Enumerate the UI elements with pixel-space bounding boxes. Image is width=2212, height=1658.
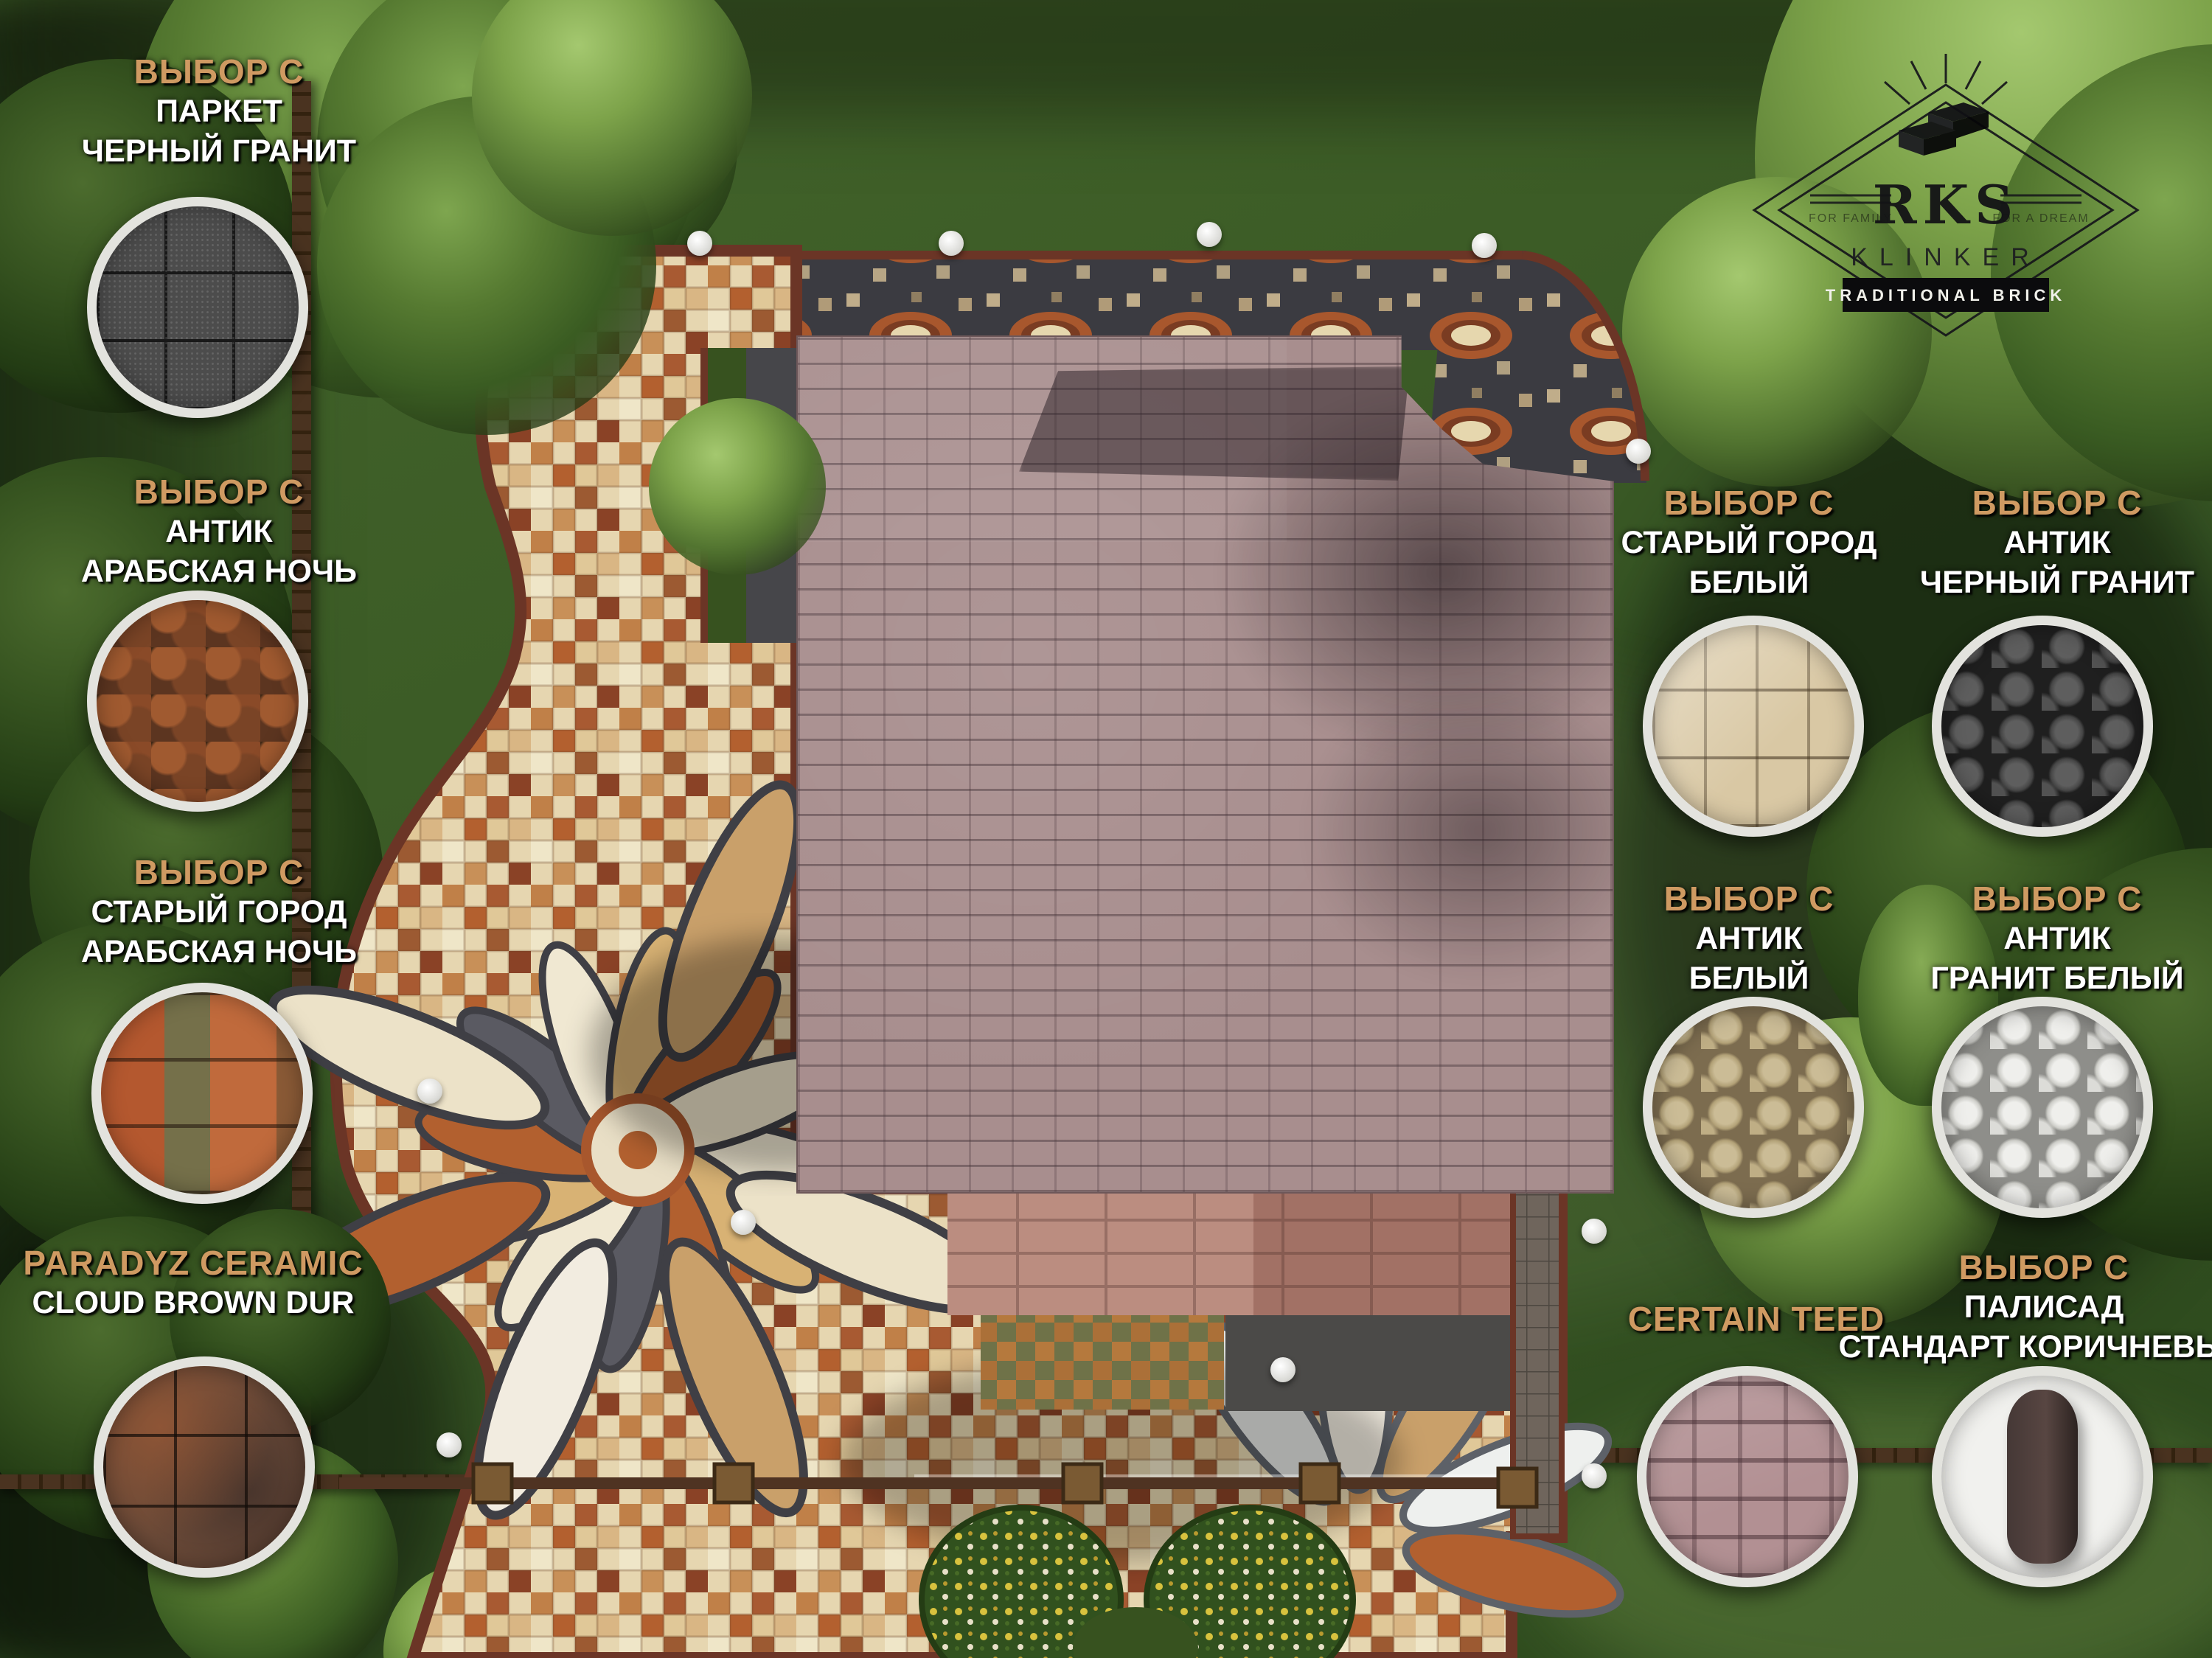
material-variant: СТАНДАРТ КОРИЧНЕВЫЙ xyxy=(1815,1327,2212,1367)
garden-lamp xyxy=(417,1079,442,1104)
swatch-old-town-white xyxy=(1643,616,1864,837)
logo-banner-text: TRADITIONAL BRICK xyxy=(1826,286,2066,304)
garden-lamp xyxy=(1472,233,1497,258)
material-name: АНТИК xyxy=(1829,919,2212,958)
material-brand: ВЫБОР С xyxy=(0,52,448,91)
material-brand: ВЫБОР С xyxy=(1829,879,2212,919)
material-brand: ВЫБОР С xyxy=(0,472,448,512)
material-label-antik-granite-white: ВЫБОР С АНТИК ГРАНИТ БЕЛЫЙ xyxy=(1829,879,2212,998)
material-variant: ГРАНИТ БЕЛЫЙ xyxy=(1829,958,2212,998)
logo-subname: KLINKER xyxy=(1851,243,2041,271)
garden-lamp xyxy=(1582,1219,1607,1244)
material-brand: PARADYZ CERAMIC xyxy=(0,1243,422,1283)
material-label-antik-arabian-night: ВЫБОР С АНТИК АРАБСКАЯ НОЧЬ xyxy=(0,472,448,591)
rks-klinker-logo: FOR FAMILY FOR A DREAM RKS KLINKER TRADI… xyxy=(1740,41,2153,350)
logo-name: RKS xyxy=(1873,173,2019,236)
material-brand: ВЫБОР С xyxy=(1829,483,2212,523)
logo-rays xyxy=(1885,54,2007,104)
material-name: СТАРЫЙ ГОРОД xyxy=(0,892,448,932)
swatch-old-town-arabian-night xyxy=(91,983,313,1204)
garden-lamp xyxy=(687,231,712,256)
swatch-antik-white xyxy=(1643,997,1864,1218)
swatch-certainteed-shingles xyxy=(1637,1366,1858,1587)
material-label-old-town-arabian-night: ВЫБОР С СТАРЫЙ ГОРОД АРАБСКАЯ НОЧЬ xyxy=(0,852,448,972)
swatch-parquet-black-granite xyxy=(87,197,308,418)
material-name: АНТИК xyxy=(0,512,448,551)
garden-lamp xyxy=(939,231,964,256)
garden-lamp xyxy=(1197,222,1222,247)
palisade-post xyxy=(2007,1390,2078,1564)
material-name: ПАЛИСАД xyxy=(1815,1287,2212,1327)
swatch-antik-black-granite xyxy=(1932,616,2153,837)
swatch-antik-granite-white xyxy=(1932,997,2153,1218)
garden-lamp xyxy=(731,1210,756,1235)
garden-lamp xyxy=(1626,439,1651,464)
material-variant: ЧЕРНЫЙ ГРАНИТ xyxy=(0,131,448,171)
garden-lamp xyxy=(1582,1463,1607,1488)
material-label-palisade: ВЫБОР С ПАЛИСАД СТАНДАРТ КОРИЧНЕВЫЙ xyxy=(1815,1247,2212,1367)
material-name: CLOUD BROWN DUR xyxy=(0,1283,422,1323)
swatch-antik-arabian-night xyxy=(87,591,308,812)
material-variant: ЧЕРНЫЙ ГРАНИТ xyxy=(1829,562,2212,602)
bricks-icon xyxy=(1899,102,1989,156)
garden-lamp xyxy=(1270,1357,1295,1382)
material-label-antik-black-granite: ВЫБОР С АНТИК ЧЕРНЫЙ ГРАНИТ xyxy=(1829,483,2212,602)
swatch-palisade-standard-brown xyxy=(1932,1366,2153,1587)
swatch-paradyz-cloud-brown xyxy=(94,1356,315,1578)
material-label-parquet-black-granite: ВЫБОР С ПАРКЕТ ЧЕРНЫЙ ГРАНИТ xyxy=(0,52,448,171)
material-label-paradyz-cloud-brown: PARADYZ CERAMIC CLOUD BROWN DUR xyxy=(0,1243,422,1323)
material-name: АНТИК xyxy=(1829,523,2212,562)
material-brand: ВЫБОР С xyxy=(0,852,448,892)
garden-lamp xyxy=(437,1432,462,1457)
material-variant: АРАБСКАЯ НОЧЬ xyxy=(0,932,448,972)
site-plan-render: ВЫБОР С ПАРКЕТ ЧЕРНЫЙ ГРАНИТ ВЫБОР С АНТ… xyxy=(0,0,2212,1658)
material-variant: АРАБСКАЯ НОЧЬ xyxy=(0,551,448,591)
courtyard-tree xyxy=(649,398,826,575)
material-brand: ВЫБОР С xyxy=(1815,1247,2212,1287)
material-name: ПАРКЕТ xyxy=(0,91,448,131)
